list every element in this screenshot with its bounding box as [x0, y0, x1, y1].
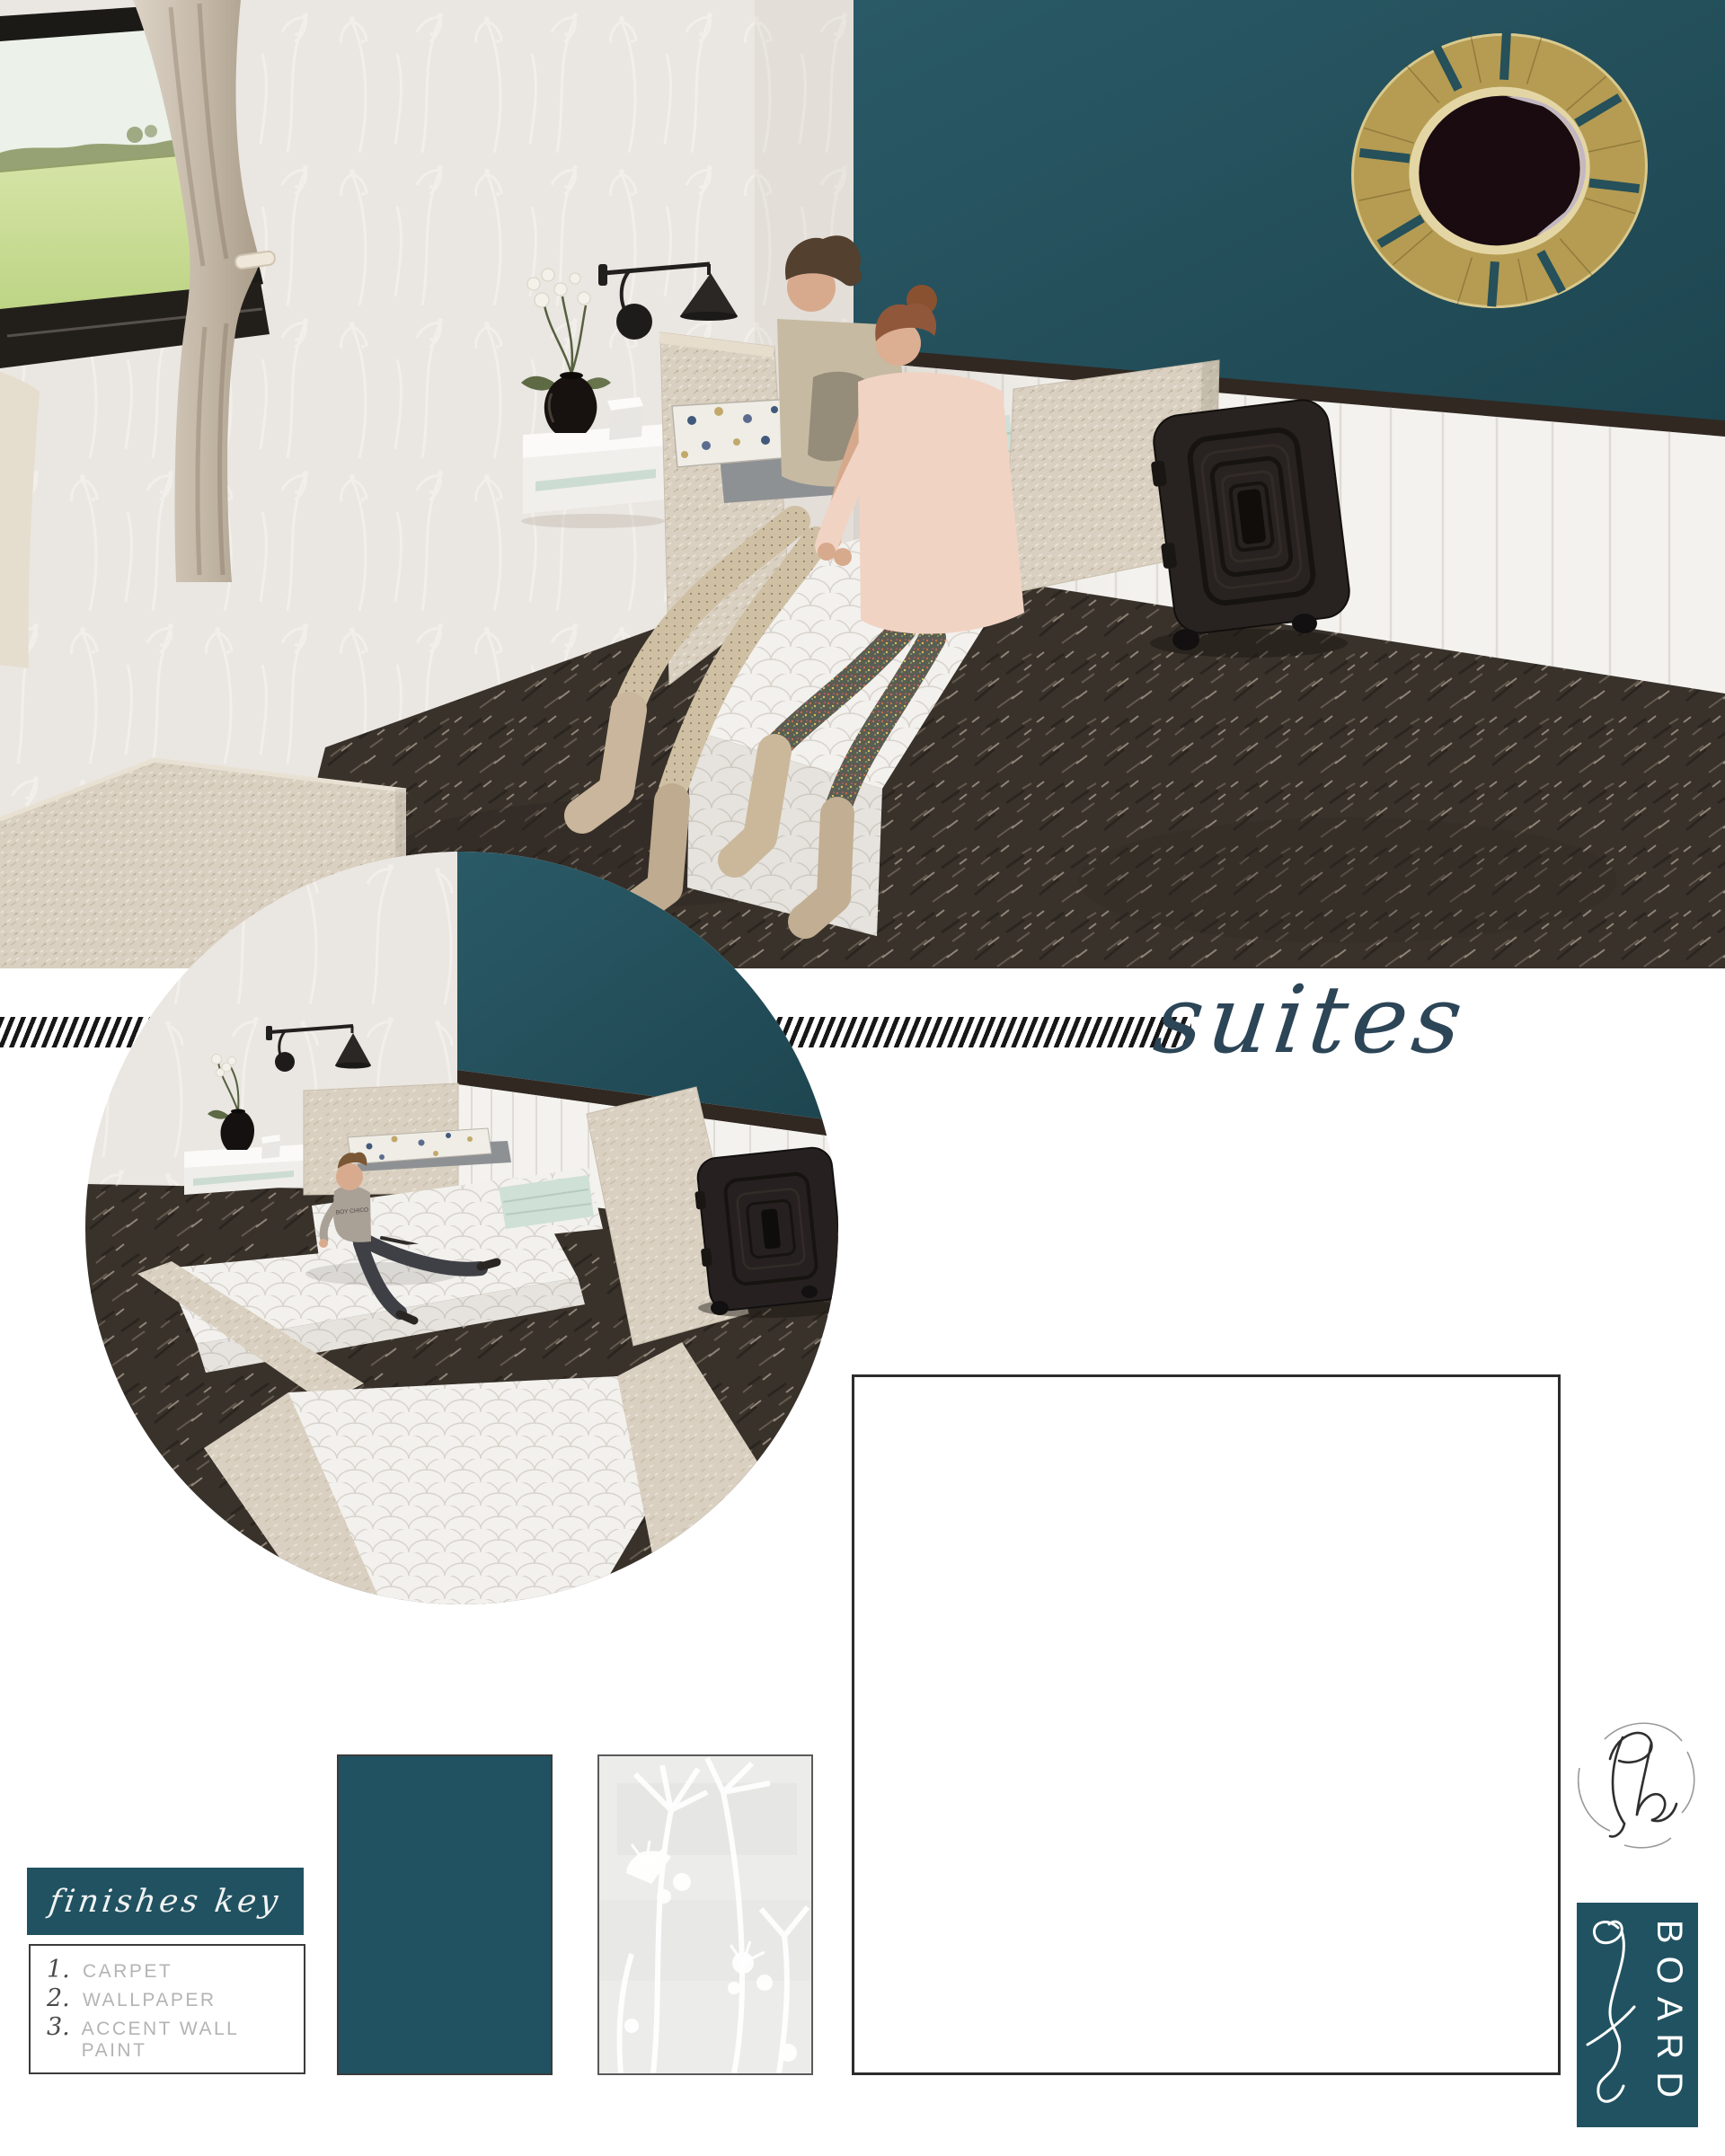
board-logo-signature — [1577, 1910, 1641, 2120]
accent-paint-swatch — [337, 1754, 553, 2075]
empty-plan-box — [852, 1374, 1561, 2075]
board-logo-text: BOARD — [1649, 1920, 1689, 2110]
item-label: ACCENT WALL PAINT — [82, 2019, 304, 2062]
finishes-item-carpet: 1. CARPET — [47, 1956, 304, 1984]
item-label: WALLPAPER — [83, 1990, 217, 2011]
item-number: 1. — [47, 1956, 83, 1984]
item-number: 2. — [47, 1984, 83, 2012]
suitcase — [1146, 397, 1352, 658]
finishes-item-wallpaper: 2. WALLPAPER — [47, 1984, 304, 2012]
item-number: 3. — [47, 2013, 82, 2041]
wallpaper-swatch-art — [599, 1756, 811, 2073]
designer-monogram — [1570, 1714, 1705, 1853]
suites-script-title: suites — [1147, 970, 1575, 1087]
inset-room-render: BOY CHICO — [85, 852, 838, 1604]
inset-suitcase — [692, 1146, 838, 1318]
finishes-key-title: finishes key — [47, 1884, 284, 1920]
finishes-key-header: finishes key — [27, 1868, 304, 1935]
suite-design-board: suites — [0, 0, 1725, 2156]
board-logo-box: BOARD — [1577, 1903, 1698, 2127]
finishes-item-accent-paint: 3. ACCENT WALL PAINT — [47, 2013, 304, 2062]
main-room-render — [0, 0, 1725, 968]
finishes-key-list: 1. CARPET 2. WALLPAPER 3. ACCENT WALL PA… — [29, 1944, 305, 2074]
item-label: CARPET — [83, 1961, 172, 1983]
wallpaper-swatch — [597, 1754, 813, 2075]
